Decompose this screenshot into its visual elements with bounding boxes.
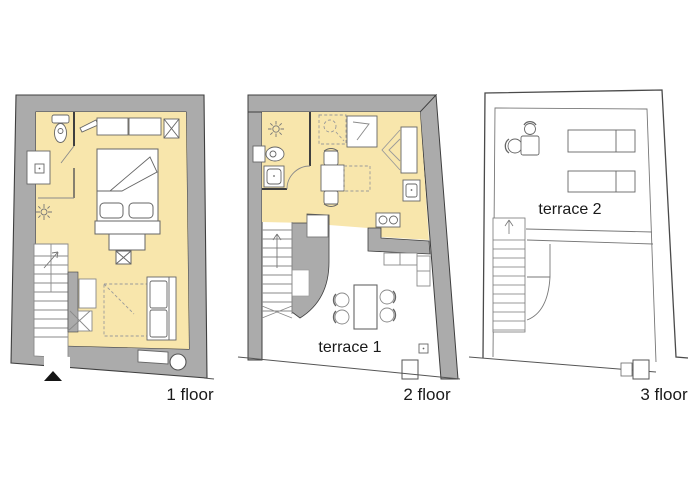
- terrace-2-label: terrace 2: [538, 201, 601, 218]
- chimney-icon: [164, 119, 179, 138]
- wardrobe-icon: [97, 118, 161, 135]
- floor-2-label: 2 floor: [403, 385, 451, 404]
- floor-plan-2: [238, 95, 460, 379]
- door-step-icon: [307, 215, 328, 237]
- column-circle-icon: [170, 354, 186, 370]
- sofa-icon: [147, 277, 176, 340]
- stairs-icon: [493, 218, 525, 332]
- floor-plan-3: [469, 90, 688, 379]
- bistro-table-icon: [505, 122, 539, 155]
- entrance-arrow-icon: [44, 371, 62, 381]
- door-step-icon: [621, 363, 632, 376]
- door-step-icon: [633, 360, 649, 379]
- floor1-ground-line: [204, 378, 214, 379]
- floor-plan-1: [11, 95, 214, 381]
- sun-lounger-icon: [568, 130, 635, 192]
- floor2-ground-line: [238, 357, 460, 379]
- stairs-icon: [34, 244, 68, 358]
- cabinet-icon: [347, 116, 377, 147]
- chair-icon: [525, 124, 536, 135]
- floor-plans-svg: terrace 1 terrace 2 1 floor 2 floor 3 fl…: [0, 0, 700, 500]
- dining-table-icon: [354, 285, 377, 329]
- door-step-icon: [402, 360, 418, 379]
- sink-icon: [264, 166, 284, 187]
- terrace-1-label: terrace 1: [318, 339, 381, 356]
- utility-box-icon: [419, 344, 428, 353]
- chair-icon: [508, 139, 522, 153]
- stairs-icon: [262, 222, 292, 318]
- bench-icon: [384, 253, 430, 286]
- chair-icon: [324, 191, 338, 204]
- bench-icon: [109, 234, 145, 250]
- closet-icon: [79, 279, 96, 308]
- sink-icon: [27, 151, 50, 184]
- entrance-opening: [44, 355, 70, 373]
- radiator-icon: [138, 350, 168, 364]
- pillow-icon: [129, 203, 153, 218]
- chair-icon: [324, 151, 338, 165]
- floor-3-label: 3 floor: [640, 385, 688, 404]
- stove-icon: [376, 213, 400, 227]
- kitchen-sink-icon: [403, 180, 420, 201]
- floor-plans-image: terrace 1 terrace 2 1 floor 2 floor 3 fl…: [0, 0, 700, 500]
- stool-icon: [116, 251, 131, 264]
- wall-niche: [292, 270, 309, 296]
- floor-1-label: 1 floor: [166, 385, 214, 404]
- parapet-lines: [526, 229, 653, 244]
- pillow-icon: [100, 203, 123, 218]
- stairwell-wall: [527, 244, 550, 320]
